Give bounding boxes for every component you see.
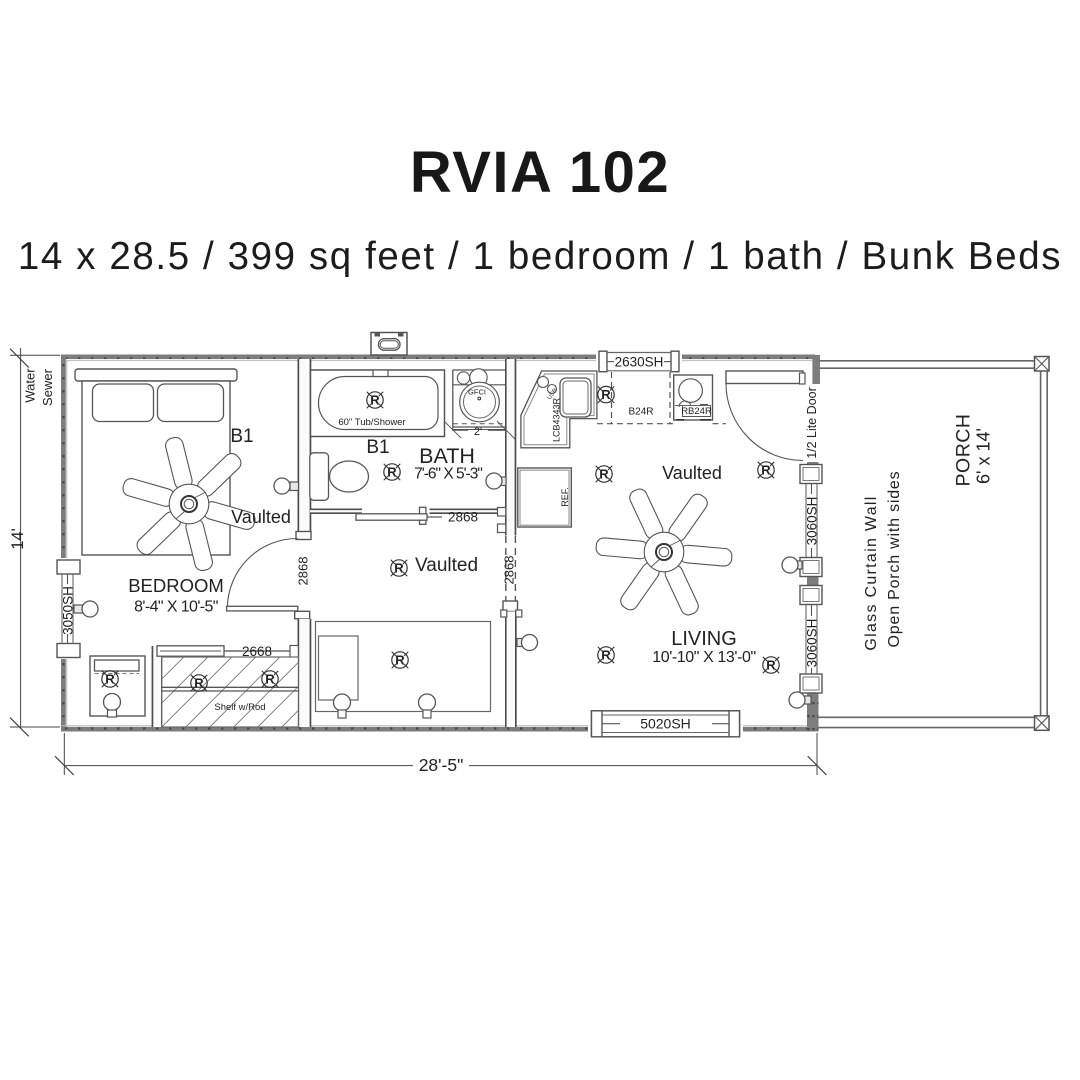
svg-text:Water: Water bbox=[23, 368, 38, 403]
svg-text:7'-6" X 5'-3": 7'-6" X 5'-3" bbox=[414, 466, 482, 483]
svg-text:2868: 2868 bbox=[502, 556, 517, 585]
svg-text:PORCH: PORCH bbox=[953, 414, 975, 487]
svg-text:5020SH: 5020SH bbox=[640, 716, 691, 732]
svg-text:R: R bbox=[599, 467, 609, 482]
svg-text:R: R bbox=[395, 653, 405, 668]
svg-text:R: R bbox=[601, 387, 611, 402]
svg-text:B1: B1 bbox=[366, 437, 389, 458]
svg-text:14': 14' bbox=[9, 528, 27, 550]
svg-text:2868: 2868 bbox=[448, 510, 478, 525]
svg-text:Sewer: Sewer bbox=[40, 368, 55, 406]
svg-text:LIVING: LIVING bbox=[671, 628, 737, 650]
svg-text:2630SH: 2630SH bbox=[615, 355, 664, 370]
svg-text:RB24R: RB24R bbox=[681, 406, 712, 417]
svg-text:Open Porch with sides: Open Porch with sides bbox=[886, 471, 903, 648]
svg-text:GFCI: GFCI bbox=[468, 388, 486, 397]
svg-text:BATH: BATH bbox=[419, 444, 475, 468]
svg-text:3050SH: 3050SH bbox=[61, 586, 76, 635]
svg-text:BEDROOM: BEDROOM bbox=[128, 575, 224, 596]
svg-text:6' x 14': 6' x 14' bbox=[974, 428, 994, 484]
svg-text:R: R bbox=[370, 393, 380, 408]
svg-text:3060SH: 3060SH bbox=[805, 497, 820, 546]
svg-text:R: R bbox=[105, 672, 115, 687]
svg-text:R: R bbox=[761, 463, 771, 478]
svg-text:Vaulted: Vaulted bbox=[662, 463, 722, 483]
svg-text:3060SH: 3060SH bbox=[805, 619, 820, 668]
svg-text:28'-5": 28'-5" bbox=[419, 755, 464, 775]
svg-text:R: R bbox=[601, 648, 611, 663]
svg-text:Glass Curtain Wall: Glass Curtain Wall bbox=[863, 495, 880, 650]
svg-text:R: R bbox=[394, 561, 404, 576]
svg-text:R: R bbox=[766, 658, 776, 673]
svg-text:R: R bbox=[194, 676, 204, 691]
svg-text:Shelf w/Rod: Shelf w/Rod bbox=[214, 702, 265, 713]
svg-text:R: R bbox=[387, 465, 397, 480]
svg-text:REF.: REF. bbox=[560, 487, 570, 507]
svg-text:2': 2' bbox=[474, 426, 482, 438]
svg-text:Vaulted: Vaulted bbox=[231, 507, 291, 527]
svg-text:8'-4" X 10'-5": 8'-4" X 10'-5" bbox=[134, 599, 218, 616]
svg-text:B24R: B24R bbox=[628, 407, 653, 418]
svg-text:Vaulted: Vaulted bbox=[415, 555, 478, 576]
svg-text:1/2 Lite Door: 1/2 Lite Door bbox=[805, 387, 819, 459]
svg-text:R: R bbox=[265, 672, 275, 687]
svg-text:60" Tub/Shower: 60" Tub/Shower bbox=[338, 417, 405, 428]
svg-text:B1: B1 bbox=[230, 426, 253, 447]
svg-text:2868: 2868 bbox=[296, 557, 311, 586]
svg-text:LCB4343R: LCB4343R bbox=[552, 397, 562, 442]
svg-text:10'-10" X 13'-0": 10'-10" X 13'-0" bbox=[652, 649, 756, 666]
